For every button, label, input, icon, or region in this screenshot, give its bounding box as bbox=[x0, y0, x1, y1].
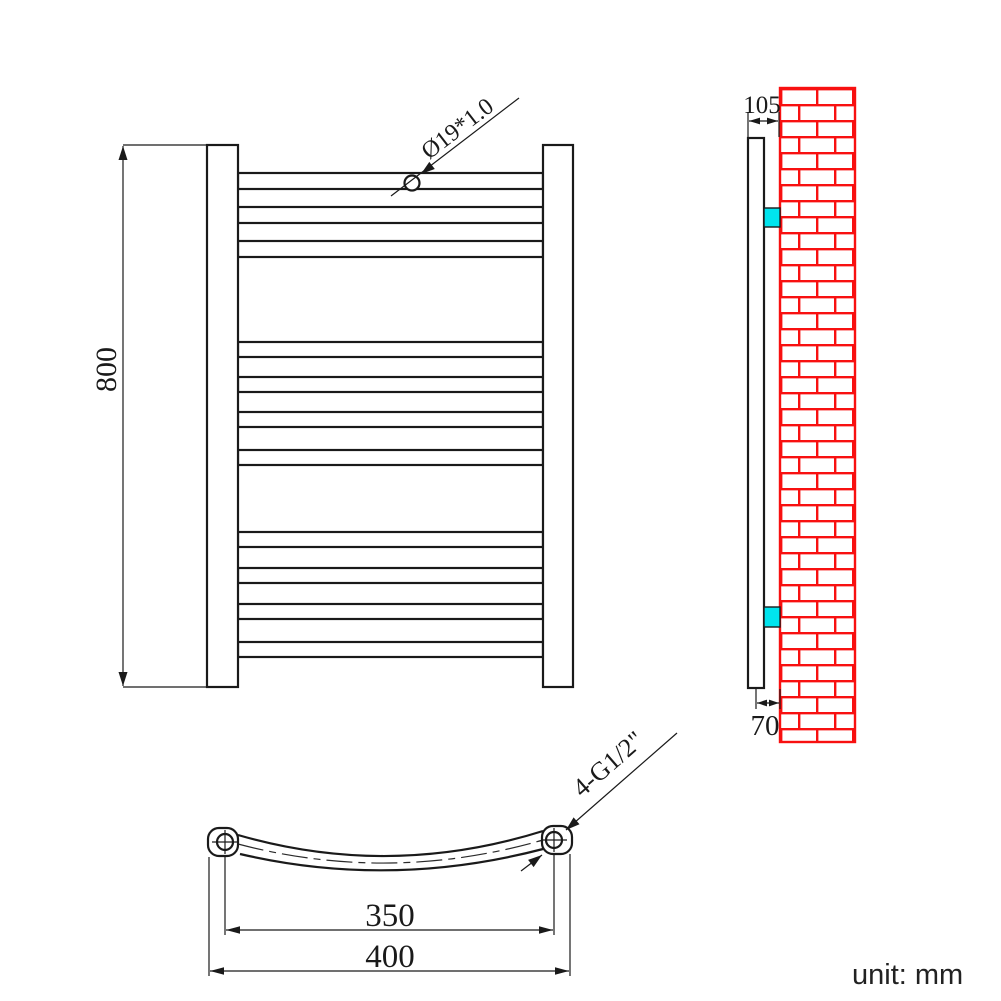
depth-dim-label: 105 bbox=[743, 92, 781, 119]
bottom-view: 4-G1/2" 350 400 bbox=[208, 725, 677, 976]
towel-bar bbox=[238, 604, 543, 619]
arrowhead-down bbox=[119, 672, 128, 686]
towel-bar bbox=[238, 412, 543, 427]
left-rail bbox=[207, 145, 238, 687]
curved-tube-top-edge bbox=[238, 831, 543, 856]
side-view: 105 70 bbox=[743, 88, 855, 742]
towel-bars bbox=[238, 173, 543, 657]
wall-offset-dim-label: 70 bbox=[751, 710, 780, 742]
arrowhead-left bbox=[226, 926, 240, 934]
drawing-canvas: 800 Ø19*1.0 105 bbox=[0, 0, 1001, 1001]
towel-radiator-drawing: 800 Ø19*1.0 105 bbox=[0, 0, 1001, 1001]
centers-dim-label: 350 bbox=[365, 898, 415, 934]
arrowhead-up bbox=[119, 146, 128, 160]
brick-wall bbox=[780, 88, 855, 742]
lower-bracket bbox=[764, 607, 780, 627]
front-view: 800 Ø19*1.0 bbox=[90, 93, 573, 687]
callout-balloon-circle bbox=[405, 176, 420, 191]
arrowhead-right bbox=[539, 926, 553, 934]
dimension-105: 105 bbox=[743, 92, 781, 138]
width-dim-label: 400 bbox=[365, 939, 415, 975]
right-rail bbox=[543, 145, 573, 687]
dimension-70: 70 bbox=[751, 689, 781, 742]
towel-bar bbox=[238, 173, 543, 189]
height-dim-label: 800 bbox=[90, 347, 123, 392]
thread-spec-label: 4-G1/2" bbox=[567, 725, 650, 802]
bar-spec-label: Ø19*1.0 bbox=[417, 93, 499, 164]
side-tube bbox=[748, 138, 764, 688]
towel-bar bbox=[238, 532, 543, 547]
extension-lines bbox=[756, 689, 780, 709]
arrowhead-right bbox=[555, 967, 569, 975]
towel-bar bbox=[238, 568, 543, 583]
arrowhead-left bbox=[210, 967, 224, 975]
upper-bracket bbox=[764, 208, 780, 227]
towel-bar bbox=[238, 450, 543, 465]
leader-arrowhead-2 bbox=[528, 855, 542, 867]
curved-tube-bottom-edge bbox=[240, 849, 543, 870]
arrowhead-right bbox=[769, 700, 779, 707]
dimension-350: 350 bbox=[225, 854, 554, 935]
towel-bar bbox=[238, 377, 543, 392]
towel-bar bbox=[238, 642, 543, 657]
towel-bar bbox=[238, 342, 543, 357]
arrowhead-left bbox=[757, 700, 767, 707]
unit-note: unit: mm bbox=[852, 959, 963, 991]
towel-bar bbox=[238, 207, 543, 223]
towel-bar bbox=[238, 241, 543, 257]
